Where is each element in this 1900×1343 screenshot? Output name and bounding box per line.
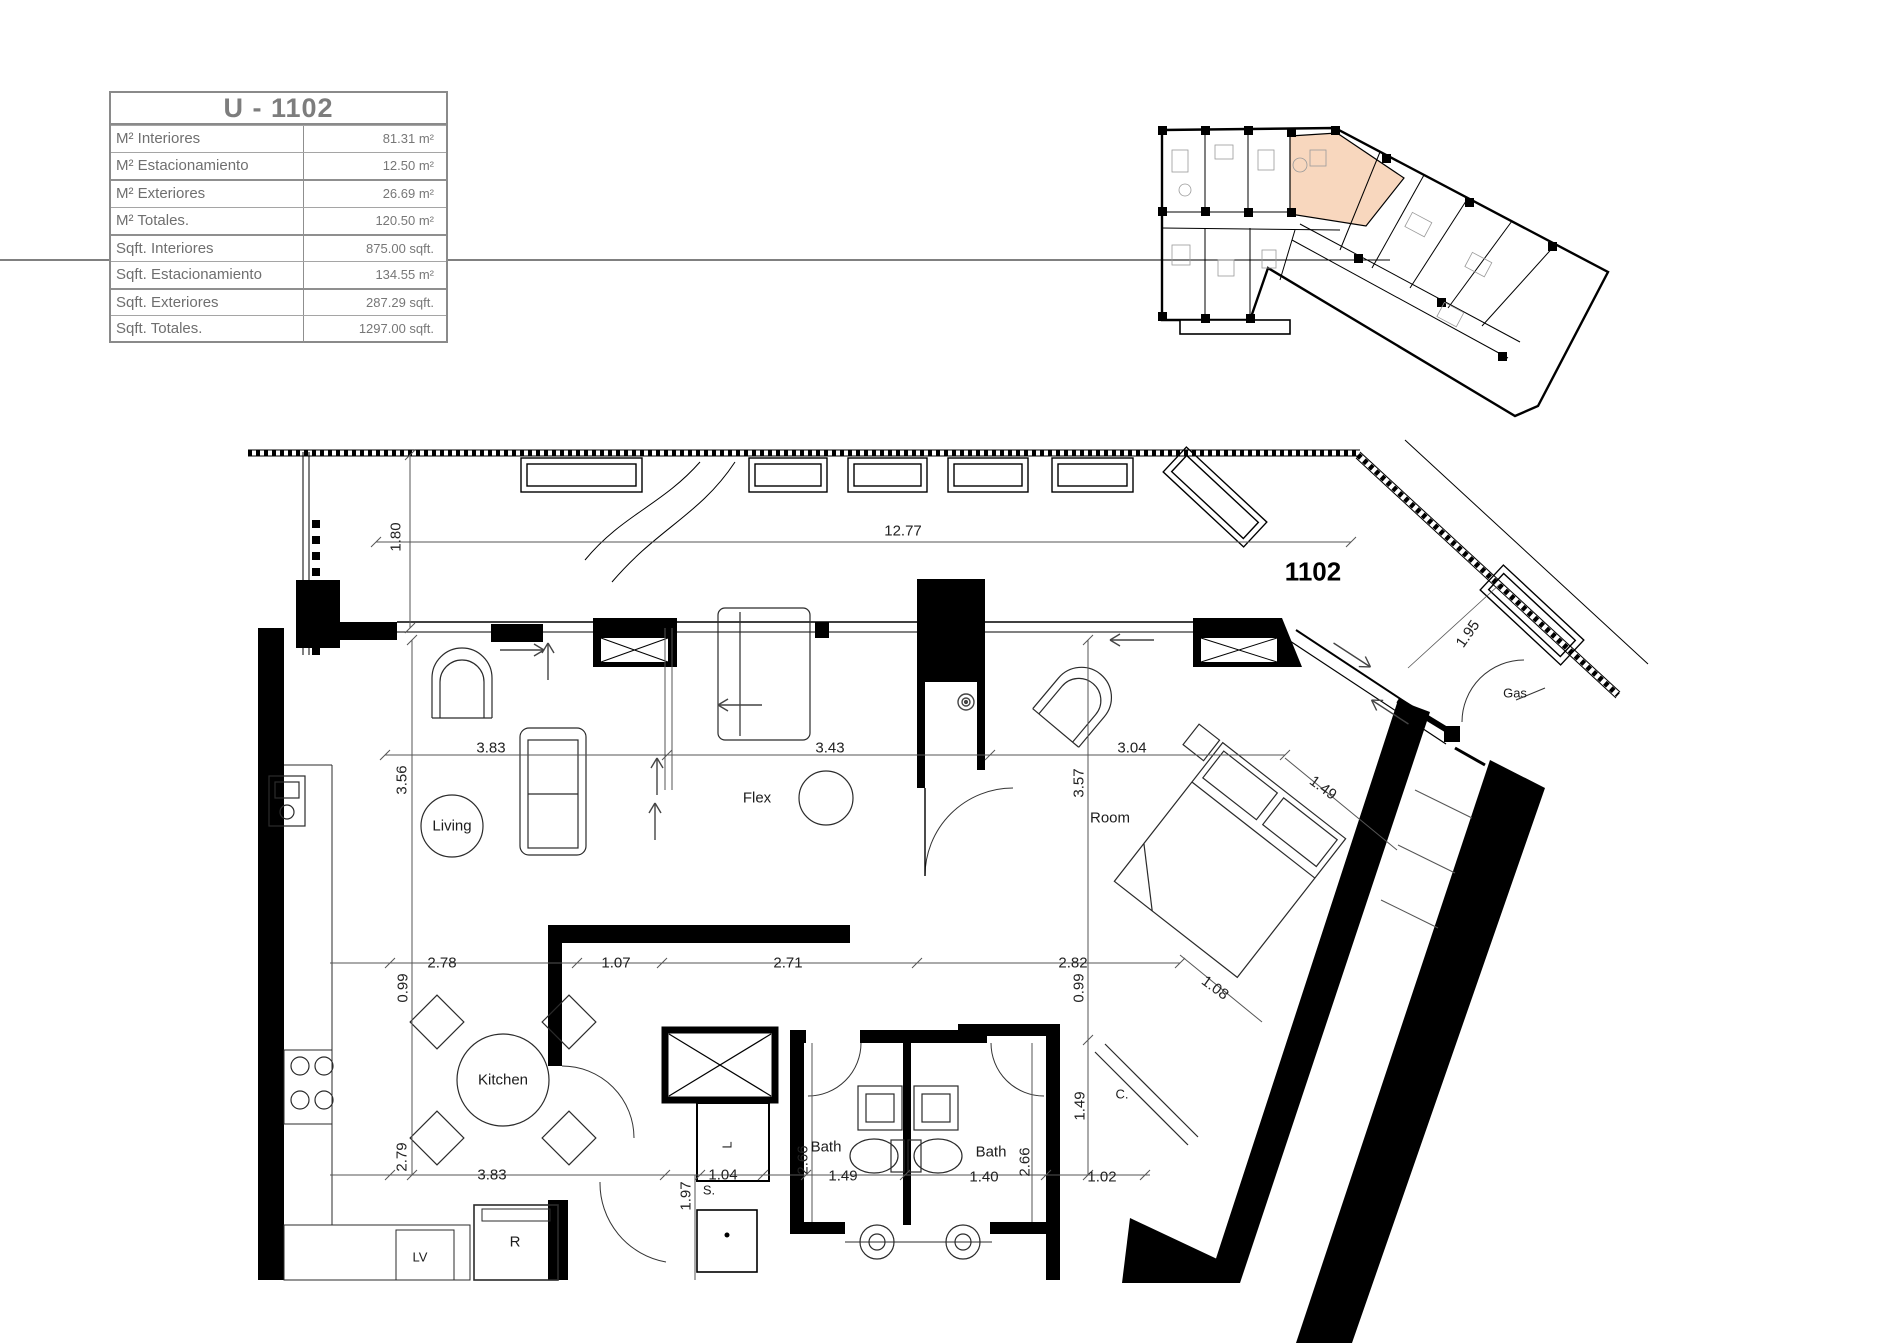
- table-value: 287.29 sqft.: [304, 290, 446, 315]
- floorplan-sheet: { "unit_table": { "title": "U - 1102", "…: [0, 0, 1900, 1343]
- unit-info-table: U - 1102 M² Interiores81.31 m² M² Estaci…: [109, 91, 448, 343]
- table-label: Sqft. Exteriores: [111, 290, 304, 315]
- table-label: Sqft. Estacionamiento: [111, 262, 304, 288]
- table-label: M² Interiores: [111, 126, 304, 152]
- dim-room-lower-width: 2.82: [1058, 955, 1087, 972]
- furniture: [269, 608, 1346, 1280]
- dim-room-width: 3.04: [1117, 740, 1146, 757]
- dim-bath-left-depth: 2.66: [795, 1145, 812, 1174]
- dim-pantry-depth: 1.97: [678, 1181, 695, 1210]
- table-value: 12.50 m²: [304, 153, 446, 179]
- table-label: M² Estacionamiento: [111, 153, 304, 179]
- dim-closet-height: 1.49: [1072, 1091, 1089, 1120]
- fridge-label: R: [510, 1234, 521, 1251]
- dim-room-side: 0.99: [1071, 973, 1088, 1002]
- table-value: 26.69 m²: [304, 181, 446, 206]
- arrow-up-2: [649, 803, 661, 840]
- table-label: M² Exteriores: [111, 181, 304, 206]
- table-value: 875.00 sqft.: [304, 236, 446, 261]
- dim-terrace-depth: 1.80: [388, 522, 405, 551]
- dim-kitchen-lower-width: 3.83: [477, 1167, 506, 1184]
- linen-label: L: [720, 1141, 735, 1148]
- arrow-up-3: [542, 643, 554, 680]
- table-value: 81.31 m²: [304, 126, 446, 152]
- room-label-kitchen: Kitchen: [478, 1072, 528, 1089]
- dim-bath-left-width: 1.49: [828, 1168, 857, 1185]
- arrow-right-1: [500, 644, 544, 656]
- dim-hall-width: 1.07: [601, 955, 630, 972]
- gas-label: Gas: [1503, 686, 1527, 701]
- room-label-bath-left: Bath: [811, 1139, 842, 1156]
- bed: [1091, 724, 1346, 977]
- room-label-room: Room: [1090, 810, 1130, 827]
- closet-label: C.: [1116, 1087, 1129, 1102]
- storage-label: S.: [703, 1183, 715, 1198]
- dim-closet-width: 1.02: [1087, 1169, 1116, 1186]
- table-value: 120.50 m²: [304, 208, 446, 234]
- unit-table-title: U - 1102: [111, 93, 446, 125]
- room-label-flex: Flex: [743, 790, 771, 807]
- dim-flex-width: 3.43: [815, 740, 844, 757]
- table-value: 134.55 m²: [304, 262, 446, 288]
- dim-terrace-width: 12.77: [884, 523, 922, 540]
- dim-kitchen-side: 0.99: [395, 973, 412, 1002]
- table-label: M² Totales.: [111, 208, 304, 234]
- dim-room-depth: 3.57: [1071, 768, 1088, 797]
- dim-kitchen-depth: 2.79: [394, 1142, 411, 1171]
- target-symbol: [958, 694, 974, 710]
- dim-bath-right-depth: 2.66: [1017, 1147, 1034, 1176]
- dim-flex-lower-width: 2.71: [773, 955, 802, 972]
- room-label-living: Living: [432, 818, 471, 835]
- table-label: Sqft. Totales.: [111, 316, 304, 342]
- dim-living-depth: 3.56: [394, 765, 411, 794]
- dim-corridor-width: 1.04: [708, 1167, 737, 1184]
- dishwasher-label: LV: [413, 1250, 428, 1265]
- unit-number-label: 1102: [1285, 557, 1341, 588]
- arrow-left-2: [1110, 634, 1154, 646]
- arrow-up-1: [651, 758, 663, 795]
- room-label-bath-right: Bath: [976, 1144, 1007, 1161]
- dim-bath-right-width: 1.40: [969, 1169, 998, 1186]
- table-value: 1297.00 sqft.: [304, 316, 446, 342]
- dim-kitchen-width: 2.78: [427, 955, 456, 972]
- table-label: Sqft. Interiores: [111, 236, 304, 261]
- dim-living-width: 3.83: [476, 740, 505, 757]
